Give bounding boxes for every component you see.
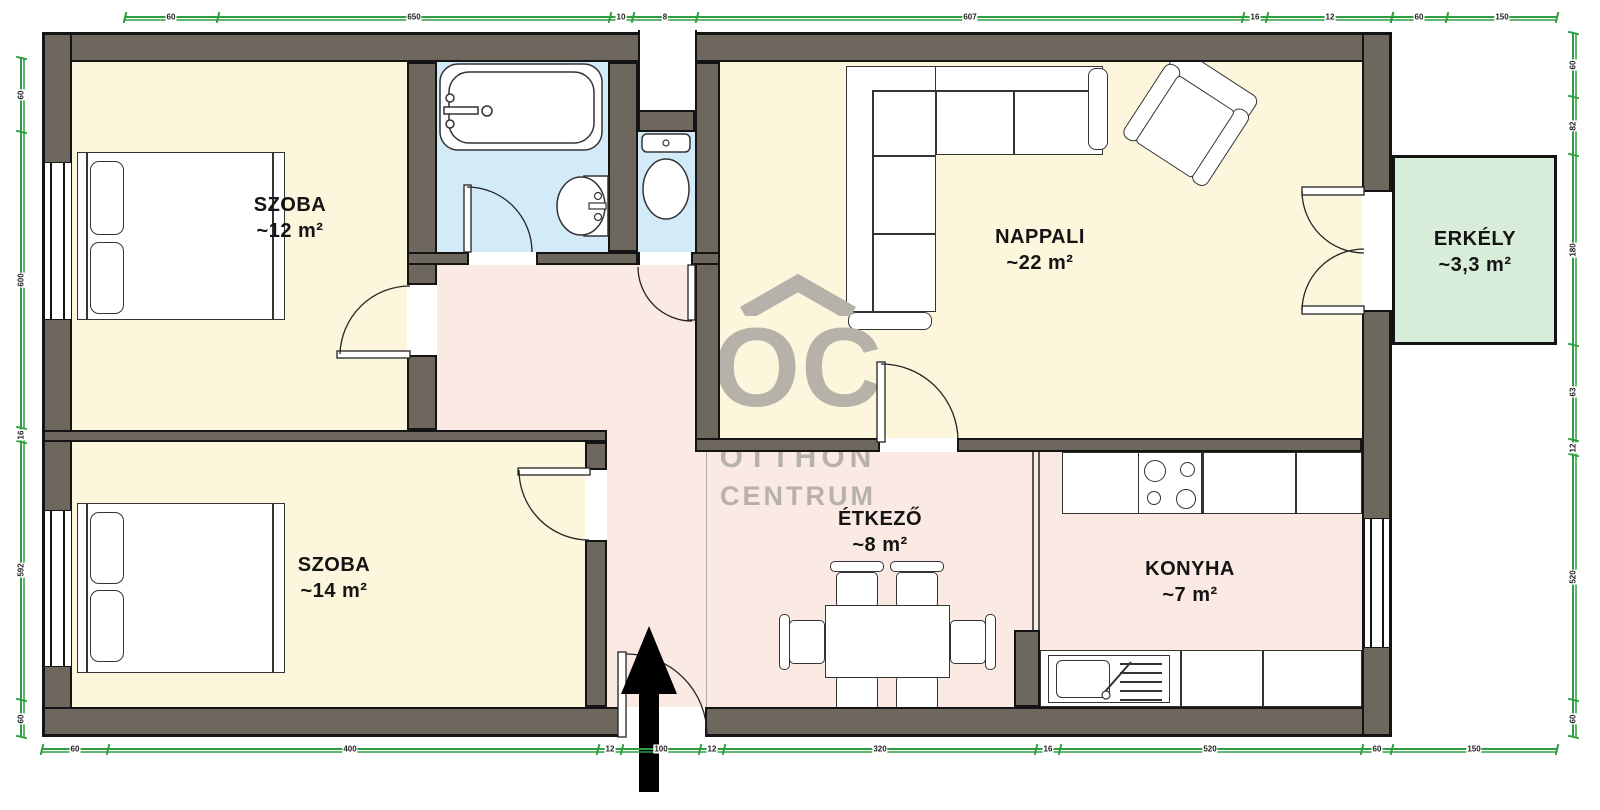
- dim-label: 400: [342, 745, 357, 754]
- dim-label: 600: [17, 272, 26, 287]
- room-label-nappali: NAPPALI ~22 m²: [920, 224, 1160, 276]
- room-area: ~8 m²: [760, 532, 1000, 558]
- dim-label: 520: [1569, 569, 1578, 584]
- room-name: ERKÉLY: [1355, 226, 1595, 252]
- dim-label: 520: [1202, 745, 1217, 754]
- dim-label: 63: [1569, 387, 1578, 398]
- room-name: NAPPALI: [920, 224, 1160, 250]
- dim-label: 60: [17, 714, 26, 725]
- dim-label: 100: [653, 745, 668, 754]
- washbasin-symbol: [557, 176, 608, 236]
- toilet-symbol: [642, 134, 690, 219]
- dim-label: 12: [605, 745, 616, 754]
- dim-label: 8: [662, 13, 668, 22]
- dim-label: 16: [1043, 745, 1054, 754]
- room-name: SZOBA: [170, 192, 410, 218]
- dim-label: 60: [166, 13, 177, 22]
- dim-label: 60: [17, 90, 26, 101]
- entrance-arrow: [621, 626, 677, 792]
- dim-label: 82: [1569, 121, 1578, 132]
- room-label-szoba-2: SZOBA ~14 m²: [214, 552, 454, 604]
- room-label-erkely: ERKÉLY ~3,3 m²: [1355, 226, 1595, 278]
- dim-label: 150: [1466, 745, 1481, 754]
- room-name: ÉTKEZŐ: [760, 506, 1000, 532]
- dim-label: 60: [1372, 745, 1383, 754]
- dim-label: 650: [406, 13, 421, 22]
- dim-label: 16: [17, 430, 26, 441]
- room-area: ~12 m²: [170, 218, 410, 244]
- dim-line-top: [125, 16, 1392, 18]
- room-label-etkezo: ÉTKEZŐ ~8 m²: [760, 506, 1000, 558]
- dim-label: 320: [872, 745, 887, 754]
- doors-and-fixtures-layer: [0, 0, 1600, 810]
- dim-line-right: [1572, 33, 1574, 737]
- dim-label: 180: [1569, 242, 1578, 257]
- dim-label: 150: [1494, 13, 1509, 22]
- room-area: ~14 m²: [214, 578, 454, 604]
- dim-label: 12: [1325, 13, 1336, 22]
- room-label-konyha: KONYHA ~7 m²: [1070, 556, 1310, 608]
- faucet-icon: [1102, 662, 1131, 699]
- floor-plan: OC OTTHON CENTRUM: [0, 0, 1600, 810]
- door-symbol: [337, 185, 1364, 737]
- dim-label: 607: [962, 13, 977, 22]
- dim-label: 16: [1250, 13, 1261, 22]
- dim-label: 60: [1569, 714, 1578, 725]
- room-area: ~3,3 m²: [1355, 252, 1595, 278]
- room-area: ~7 m²: [1070, 582, 1310, 608]
- room-area: ~22 m²: [920, 250, 1160, 276]
- dim-label: 592: [17, 562, 26, 577]
- room-name: SZOBA: [214, 552, 454, 578]
- dim-label: 60: [1414, 13, 1425, 22]
- dim-line-bottom: [42, 748, 1557, 750]
- dim-label: 10: [616, 13, 627, 22]
- dim-label: 12: [1569, 443, 1578, 454]
- bathtub-symbol: [440, 64, 602, 150]
- room-label-szoba-1: SZOBA ~12 m²: [170, 192, 410, 244]
- dim-label: 60: [70, 745, 81, 754]
- room-name: KONYHA: [1070, 556, 1310, 582]
- dim-label: 12: [707, 745, 718, 754]
- dim-line-left: [20, 58, 22, 737]
- dim-label: 60: [1569, 60, 1578, 71]
